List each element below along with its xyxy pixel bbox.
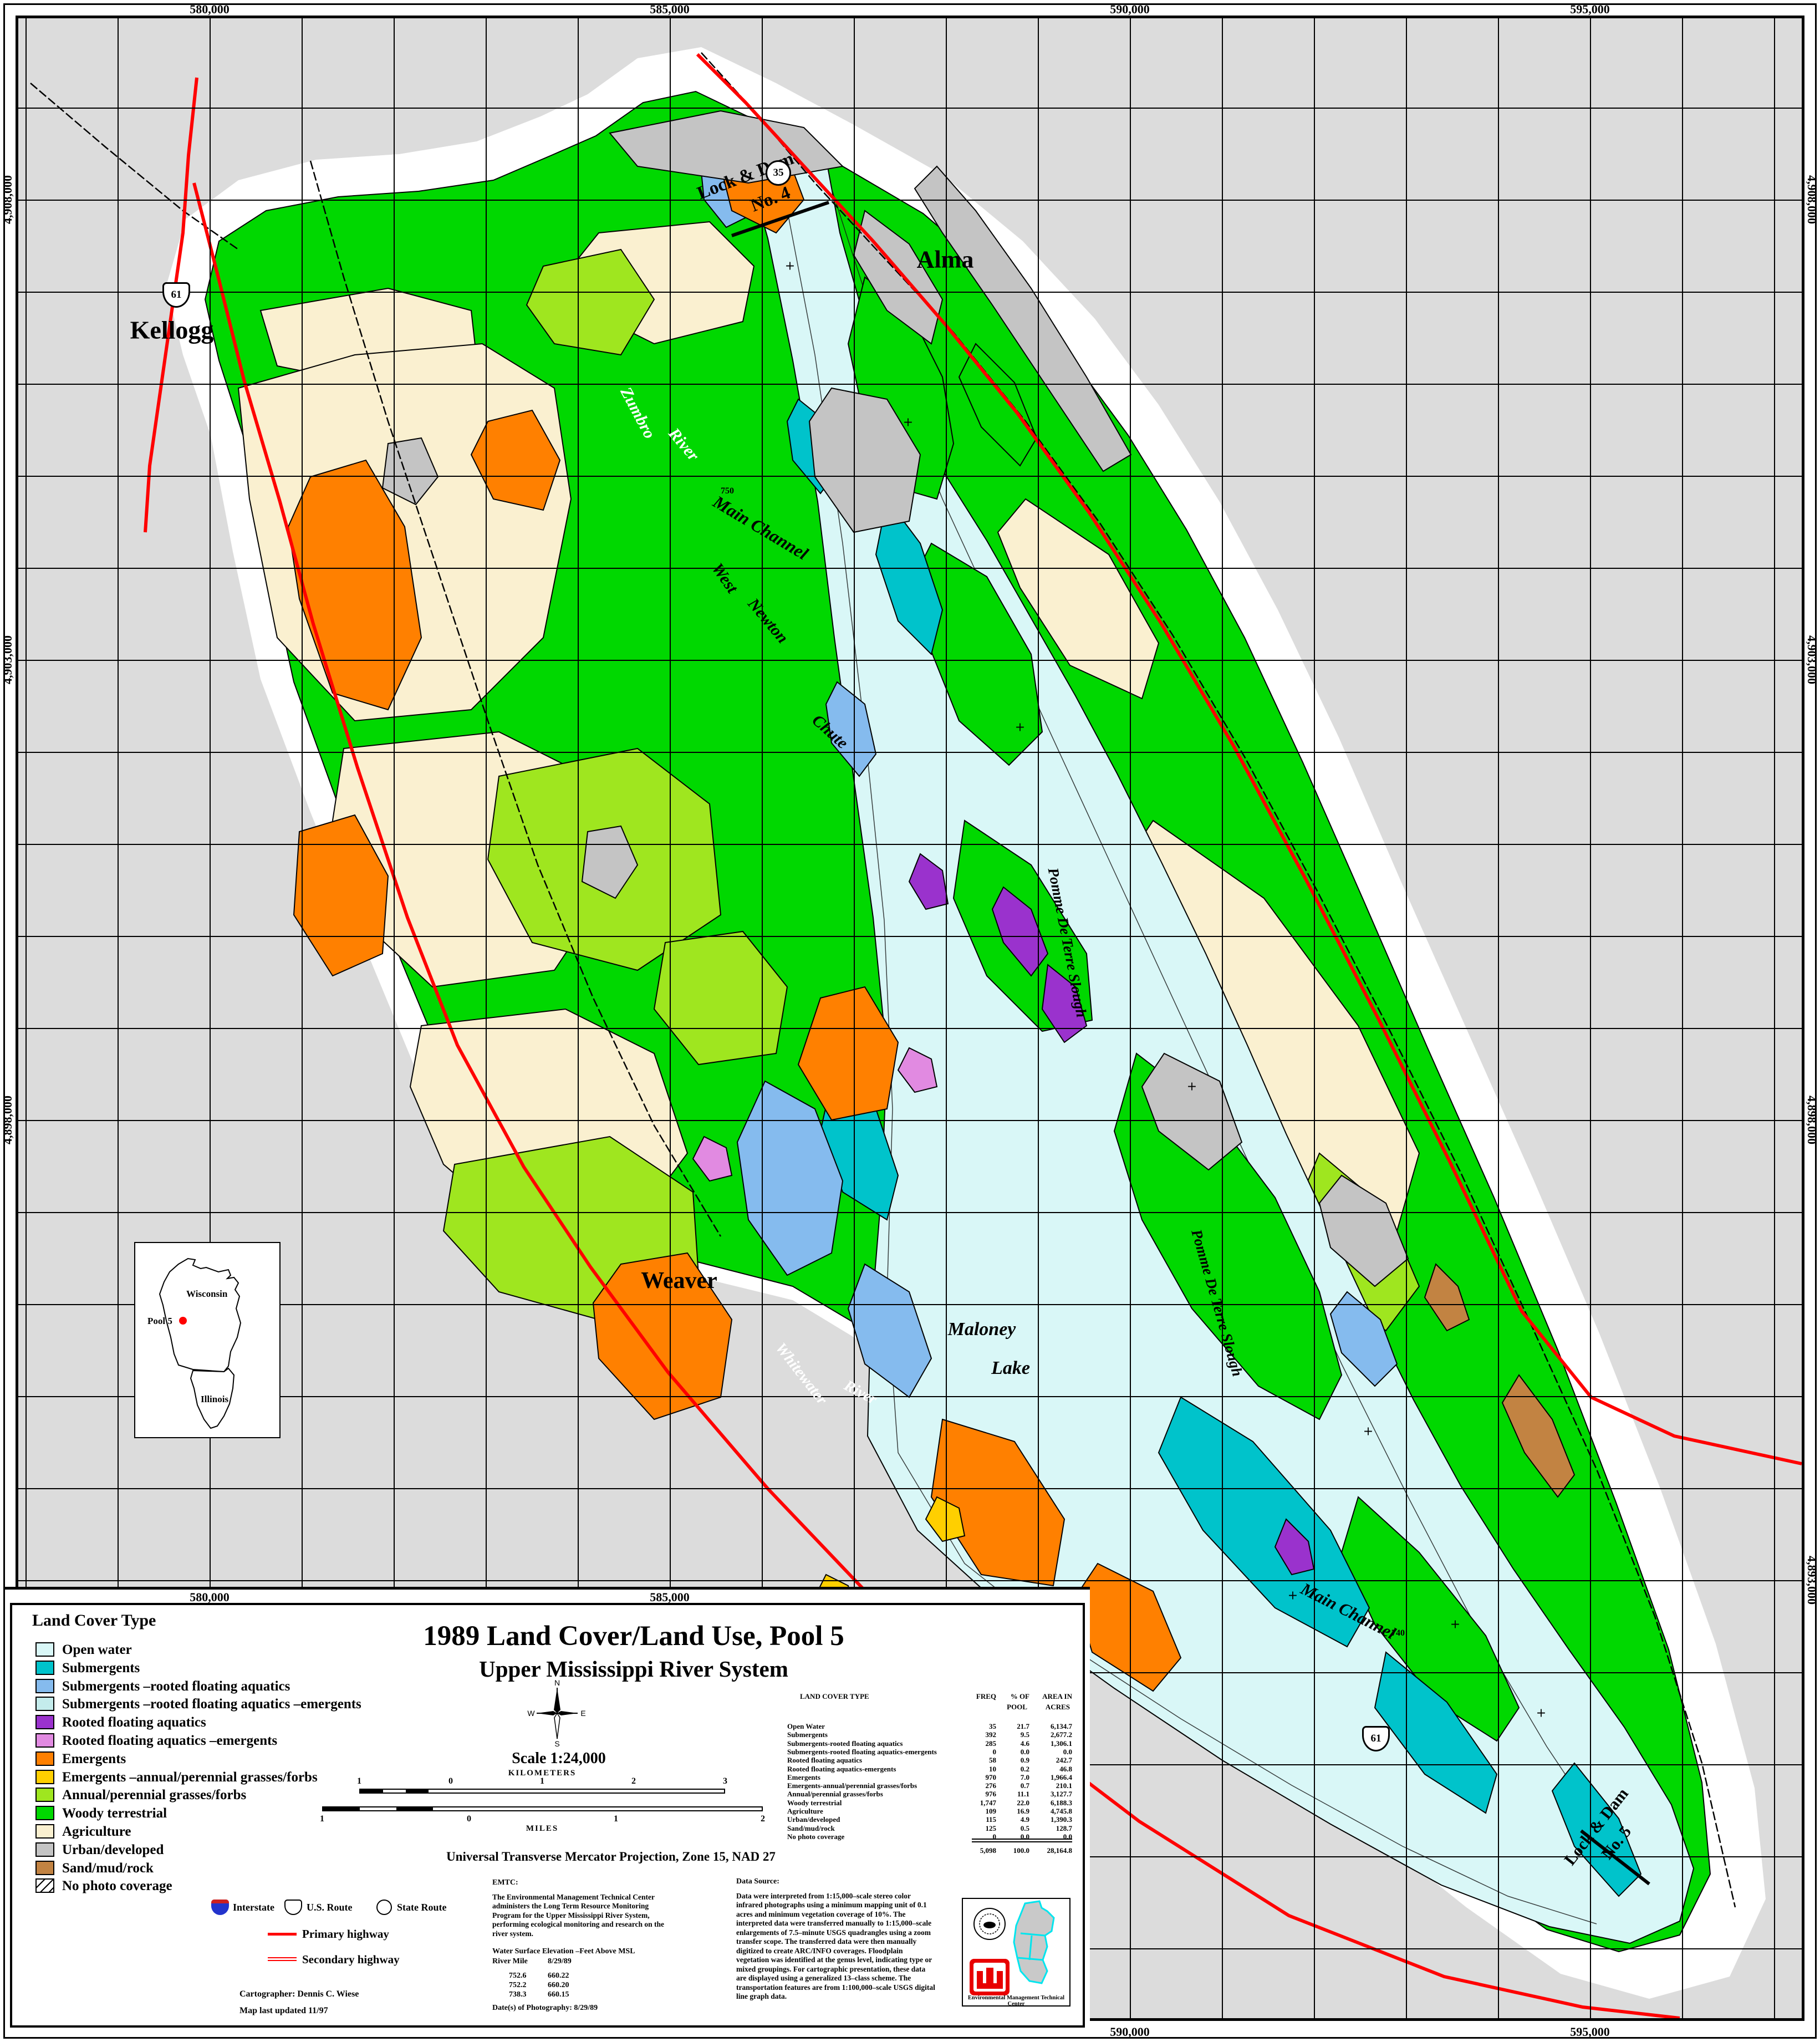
grid-coord-top: 585,000: [650, 2, 690, 17]
grid-coord-left: 4,903,000: [1, 635, 15, 684]
compass-s: S: [554, 1739, 559, 1748]
secondary-highway-sample-bottom: [268, 1960, 297, 1961]
emtc-logo-box: [962, 1898, 1070, 2007]
stats-row-label: Submergents-rooted floating aquatics-eme…: [787, 1748, 937, 1756]
legend-item: Urban/developed: [0, 1842, 388, 1859]
stats-total-acres: 28,164.8: [1000, 1846, 1072, 1855]
us-route-label: U.S. Route: [307, 1902, 353, 1913]
legend-color-swatch: [35, 1824, 54, 1839]
legend-color-swatch: [35, 1770, 54, 1784]
stats-row-acres: 2,677.2: [1000, 1730, 1072, 1739]
grid-coord-top: 595,000: [1570, 2, 1610, 17]
legend-item: Rooted floating aquatics –emergents: [0, 1733, 388, 1750]
legend-item-label: No photo coverage: [62, 1878, 172, 1894]
legend-item: Open water: [0, 1642, 388, 1659]
no-photo-swatch: [35, 1878, 54, 1893]
stats-row-label: Emergents-annual/perennial grasses/forbs: [787, 1781, 917, 1790]
wse-river-mile: 752.2: [509, 1981, 527, 1990]
stats-row-label: Submergents: [787, 1730, 828, 1739]
grid-coord-right: 4,903,000: [1804, 635, 1819, 684]
grid-coord-right: 4,908,000: [1804, 175, 1819, 224]
secondary-highway-label: Secondary highway: [302, 1953, 400, 1967]
stats-row-label: Rooted floating aquatics: [787, 1756, 862, 1765]
stats-row-label: Urban/developed: [787, 1815, 840, 1824]
legend-item: Sand/mud/rock: [0, 1861, 388, 1877]
legend-item: Agriculture: [0, 1824, 388, 1841]
map-subtitle: Upper Mississippi River System: [479, 1656, 788, 1682]
grid-coord-top: 590,000: [1110, 2, 1150, 17]
stats-row-label: Rooted floating aquatics-emergents: [787, 1765, 896, 1774]
grid-coord-right: 4,893,000: [1804, 1556, 1819, 1605]
km-tick-label: 1: [357, 1776, 361, 1786]
legend-color-swatch: [35, 1788, 54, 1802]
stats-row-acres: 1,966.4: [1000, 1773, 1072, 1782]
legend-item-label: Submergents –rooted floating aquatics –e…: [62, 1697, 361, 1712]
map-sheet: { "colors": { "open_water": "#d9f7f7", "…: [0, 0, 1820, 2042]
emtc-logo-caption: Environmental Management Technical Cente…: [963, 1995, 1069, 2007]
stats-row-acres: 46.8: [1000, 1765, 1072, 1774]
stats-row-label: Agriculture: [787, 1807, 823, 1816]
legend-item-label: Sand/mud/rock: [62, 1861, 154, 1876]
primary-highway-label: Primary highway: [302, 1927, 389, 1941]
scale-text: Scale 1:24,000: [512, 1750, 606, 1768]
legend-item: Submergents –rooted floating aquatics: [0, 1679, 388, 1695]
stats-row-acres: 242.7: [1000, 1756, 1072, 1765]
datasource-heading: Data Source:: [736, 1877, 779, 1886]
emtc-logo-graphics: [963, 1899, 1069, 2005]
legend-item-label: Open water: [62, 1642, 132, 1658]
legend-item-label: Woody terrestrial: [62, 1806, 167, 1821]
legend-item-label: Submergents: [62, 1661, 140, 1676]
wse-col1: River Mile: [492, 1957, 528, 1966]
legend-item: Rooted floating aquatics: [0, 1715, 388, 1732]
grid-coord-bottom: 590,000: [1110, 2025, 1150, 2039]
projection-text: Universal Transverse Mercator Projection…: [446, 1850, 776, 1864]
datasource-paragraph: Data were interpreted from 1:15,000–scal…: [736, 1892, 937, 2002]
mile-tick-label: 1: [320, 1814, 324, 1824]
legend-item: Emergents –annual/perennial grasses/forb…: [0, 1770, 388, 1786]
stats-row-label: Emergents: [787, 1773, 820, 1782]
stats-rule-bottom: [972, 1841, 1072, 1842]
primary-highway-sample: [268, 1933, 297, 1936]
secondary-highway-sample-top: [268, 1957, 297, 1958]
wse-river-mile: 752.6: [509, 1972, 527, 1980]
legend-item-label: Rooted floating aquatics –emergents: [62, 1733, 277, 1749]
stats-row-acres: 6,134.7: [1000, 1722, 1072, 1731]
emtc-heading: EMTC:: [492, 1878, 518, 1887]
grid-coord-top: 580,000: [190, 2, 230, 17]
states-map-icon: [1014, 1901, 1054, 1983]
legend-item: Annual/perennial grasses/forbs: [0, 1788, 388, 1804]
legend-color-swatch: [35, 1751, 54, 1766]
stats-row-acres: 1,390.3: [1000, 1815, 1072, 1824]
grid-coord-left: 4,898,000: [1, 1096, 15, 1144]
legend-item: Emergents: [0, 1751, 388, 1768]
grid-coord-bottom-inner: 585,000: [650, 1590, 690, 1605]
legend-color-swatch: [35, 1661, 54, 1675]
grid-coord-left: 4,908,000: [1, 175, 15, 224]
stats-row-label: Annual/perennial grasses/forbs: [787, 1790, 883, 1799]
legend-item: No photo coverage: [0, 1878, 388, 1895]
map-title: 1989 Land Cover/Land Use, Pool 5: [423, 1620, 844, 1652]
emtc-paragraph: The Environmental Management Technical C…: [492, 1893, 665, 1938]
stats-row-label: Submergents-rooted floating aquatics: [787, 1739, 903, 1748]
legend-color-swatch: [35, 1715, 54, 1729]
mile-bar-caption: MILES: [526, 1824, 558, 1834]
legend-item-label: Submergents –rooted floating aquatics: [62, 1679, 290, 1694]
legend-color-swatch: [35, 1842, 54, 1857]
cartographer-text: Cartographer: Dennis C. Wiese: [239, 1989, 359, 1999]
compass-e: E: [580, 1709, 585, 1718]
stats-rule-top: [972, 1839, 1072, 1840]
wse-elevation: 660.15: [548, 1990, 569, 1999]
stats-row-label: Open Water: [787, 1722, 825, 1731]
legend-item-label: Rooted floating aquatics: [62, 1715, 206, 1730]
compass-rose: N S W E: [527, 1679, 588, 1748]
interstate-shield-icon: [211, 1900, 229, 1915]
stats-row-label: No photo coverage: [787, 1832, 844, 1841]
stats-row-label: Sand/mud/rock: [787, 1824, 835, 1833]
mile-tick-label: 2: [761, 1814, 765, 1824]
stats-row-acres: 128.7: [1000, 1824, 1072, 1833]
grid-coord-bottom: 595,000: [1570, 2025, 1610, 2039]
us-shield-icon: [284, 1900, 302, 1915]
compass-n: N: [554, 1679, 560, 1687]
wse-col2: 8/29/89: [548, 1957, 572, 1966]
legend-color-swatch: [35, 1697, 54, 1711]
stats-col-area1: AREA IN: [1000, 1692, 1072, 1701]
stats-col-area2: ACRES: [998, 1703, 1070, 1712]
legend-item-label: Annual/perennial grasses/forbs: [62, 1788, 246, 1803]
stats-col-landcover: LAND COVER TYPE: [800, 1692, 869, 1701]
map-updated-text: Map last updated 11/97: [239, 2006, 328, 2016]
legend-item-label: Agriculture: [62, 1824, 131, 1840]
legend-color-swatch: [35, 1642, 54, 1657]
stats-row-acres: 4,745.8: [1000, 1807, 1072, 1816]
wse-elevation: 660.20: [548, 1981, 569, 1990]
legend-color-swatch: [35, 1733, 54, 1748]
legend-color-swatch: [35, 1861, 54, 1875]
grid-coord-right: 4,898,000: [1804, 1096, 1819, 1144]
stats-row-acres: 3,127.7: [1000, 1790, 1072, 1799]
state-route-label: State Route: [397, 1902, 446, 1913]
km-tick-label: 1: [540, 1776, 544, 1786]
state-shield-icon: [376, 1900, 392, 1915]
legend-heading: Land Cover Type: [32, 1611, 156, 1630]
grid-coord-bottom-inner: 580,000: [190, 1590, 230, 1605]
legend-item-label: Emergents: [62, 1751, 126, 1767]
legend-color-swatch: [35, 1806, 54, 1820]
stats-row-acres: 210.1: [1000, 1781, 1072, 1790]
stats-row-acres: 1,306.1: [1000, 1739, 1072, 1748]
stats-row-label: Woody terrestrial: [787, 1799, 842, 1807]
legend-item-label: Emergents –annual/perennial grasses/forb…: [62, 1770, 318, 1785]
mile-tick-label: 0: [467, 1814, 471, 1824]
wse-elevation: 660.22: [548, 1972, 569, 1980]
stats-row-acres: 0.0: [1000, 1832, 1072, 1841]
interstate-route-label: Interstate: [233, 1902, 274, 1913]
km-scale-bar: [359, 1789, 725, 1794]
mile-scale-bar: [322, 1806, 763, 1811]
legend-item: Submergents: [0, 1661, 388, 1677]
legend-color-swatch: [35, 1679, 54, 1693]
legend-item-label: Urban/developed: [62, 1842, 164, 1858]
compass-w: W: [527, 1709, 535, 1718]
km-tick-label: 3: [723, 1776, 727, 1786]
km-tick-label: 0: [448, 1776, 453, 1786]
stats-row-acres: 0.0: [1000, 1748, 1072, 1756]
km-tick-label: 2: [631, 1776, 636, 1786]
photo-date-text: Date(s) of Photography: 8/29/89: [492, 2004, 598, 2013]
wse-heading: Water Surface Elevation –Feet Above MSL: [492, 1947, 635, 1956]
wse-river-mile: 738.3: [509, 1990, 527, 1999]
legend-item: Submergents –rooted floating aquatics –e…: [0, 1697, 388, 1713]
title-panel-content: Land Cover Type Open waterSubmergentsSub…: [0, 0, 1820, 2042]
stats-row-acres: 6,188.3: [1000, 1799, 1072, 1807]
mile-tick-label: 1: [614, 1814, 618, 1824]
